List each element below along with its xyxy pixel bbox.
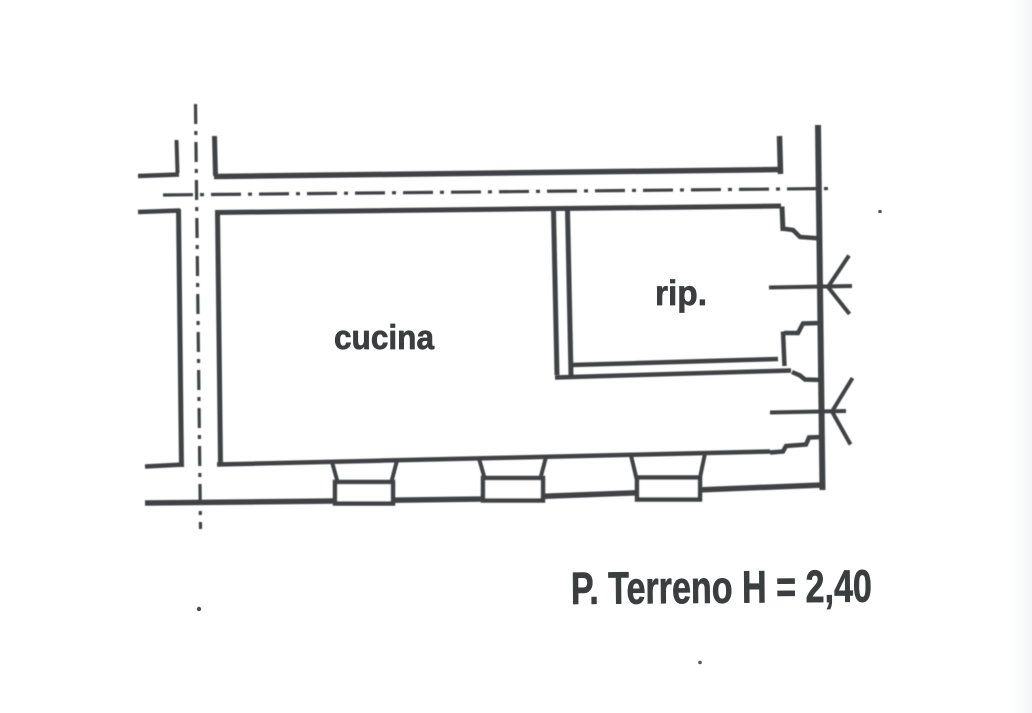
svg-text:P. Terreno H = 2,40: P. Terreno H = 2,40 bbox=[571, 561, 872, 614]
svg-text:cucina: cucina bbox=[334, 319, 435, 357]
svg-text:rip.: rip. bbox=[655, 274, 707, 313]
